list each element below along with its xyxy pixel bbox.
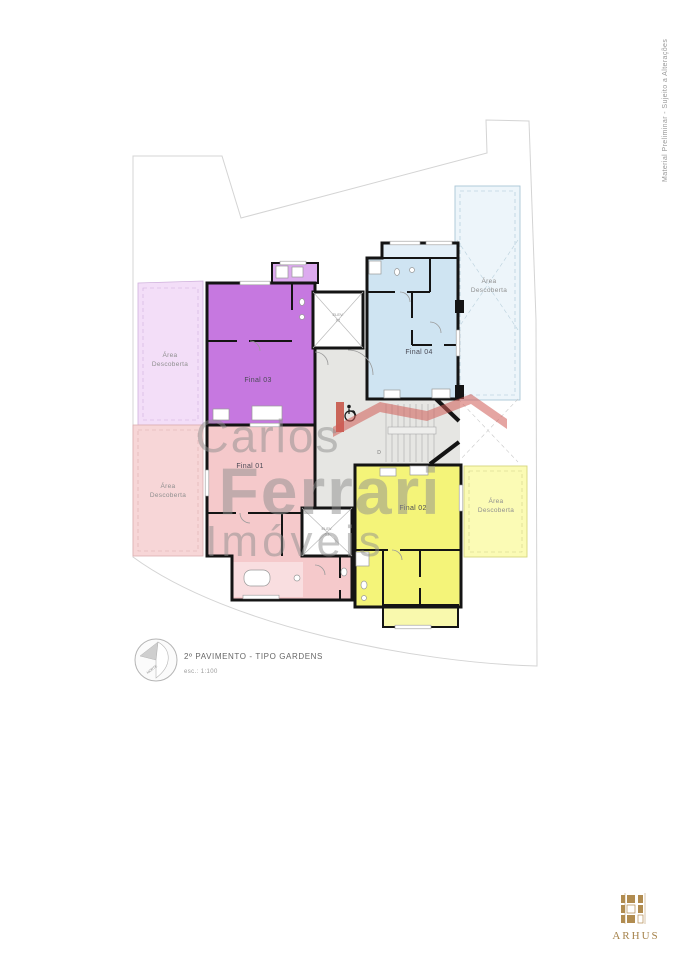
balcony-final-04 xyxy=(382,243,458,258)
svg-text:Área: Área xyxy=(163,350,178,359)
svg-text:02: 02 xyxy=(336,318,341,323)
svg-text:Área: Área xyxy=(161,481,176,490)
north-compass-icon: NORTE xyxy=(135,639,177,681)
label-final-04: Final 04 xyxy=(405,349,432,356)
arhus-logo-text: ARHUS xyxy=(612,930,659,942)
svg-text:Área: Área xyxy=(489,496,504,505)
scale-label: esc.: 1:100 xyxy=(184,669,218,675)
svg-text:Área: Área xyxy=(482,276,497,285)
elevator-02: ELEV. 02 xyxy=(313,292,363,348)
unit-final-03 xyxy=(207,263,318,425)
arhus-logo: ARHUS xyxy=(612,893,659,942)
drawing-sheet: D ELEV. 02 xyxy=(0,0,679,960)
area-descoberta-final01 xyxy=(133,425,203,556)
floor-title: 2º PAVIMENTO - TIPO GARDENS xyxy=(184,652,323,661)
stair-landing xyxy=(388,427,436,434)
floor-plan-svg: D ELEV. 02 xyxy=(0,0,679,960)
arhus-building-icon xyxy=(621,893,645,924)
svg-text:Descoberta: Descoberta xyxy=(478,507,514,514)
svg-text:Descoberta: Descoberta xyxy=(152,361,188,368)
watermark-line3: Imóveis xyxy=(205,517,385,566)
svg-text:Descoberta: Descoberta xyxy=(471,287,507,294)
svg-text:Descoberta: Descoberta xyxy=(150,492,186,499)
svg-text:ELEV.: ELEV. xyxy=(333,312,344,317)
label-final-03: Final 03 xyxy=(244,377,271,384)
side-note: Material Preliminar - Sujeito a Alteraçõ… xyxy=(662,39,669,182)
